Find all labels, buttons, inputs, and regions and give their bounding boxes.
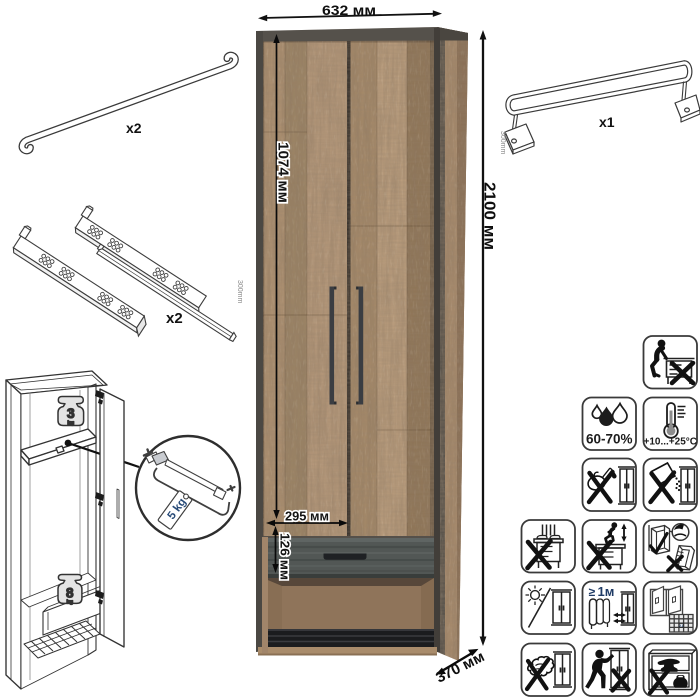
svg-text:60-70%: 60-70% xyxy=(586,432,633,447)
svg-text:+10...+25°C: +10...+25°C xyxy=(644,437,697,448)
svg-text:300mm: 300mm xyxy=(236,280,243,304)
svg-text:370 мм: 370 мм xyxy=(433,648,487,686)
svg-text:632 мм: 632 мм xyxy=(322,3,376,18)
svg-text:8: 8 xyxy=(66,586,74,601)
svg-text:≥: ≥ xyxy=(589,585,596,599)
svg-text:kg: kg xyxy=(67,421,74,427)
svg-text:x2: x2 xyxy=(166,310,183,327)
svg-text:3: 3 xyxy=(67,405,75,421)
svg-text:x2: x2 xyxy=(126,120,142,136)
svg-text:x1: x1 xyxy=(599,114,615,130)
svg-text:1074 мм: 1074 мм xyxy=(275,142,291,203)
svg-text:kg: kg xyxy=(67,600,74,606)
svg-text:300mm: 300mm xyxy=(499,131,506,155)
svg-text:21: 21 xyxy=(679,624,683,628)
svg-text:295 мм: 295 мм xyxy=(285,509,329,524)
svg-text:126 мм: 126 мм xyxy=(278,533,293,580)
svg-text:1м: 1м xyxy=(598,584,615,599)
svg-text:2100 мм: 2100 мм xyxy=(481,182,498,250)
